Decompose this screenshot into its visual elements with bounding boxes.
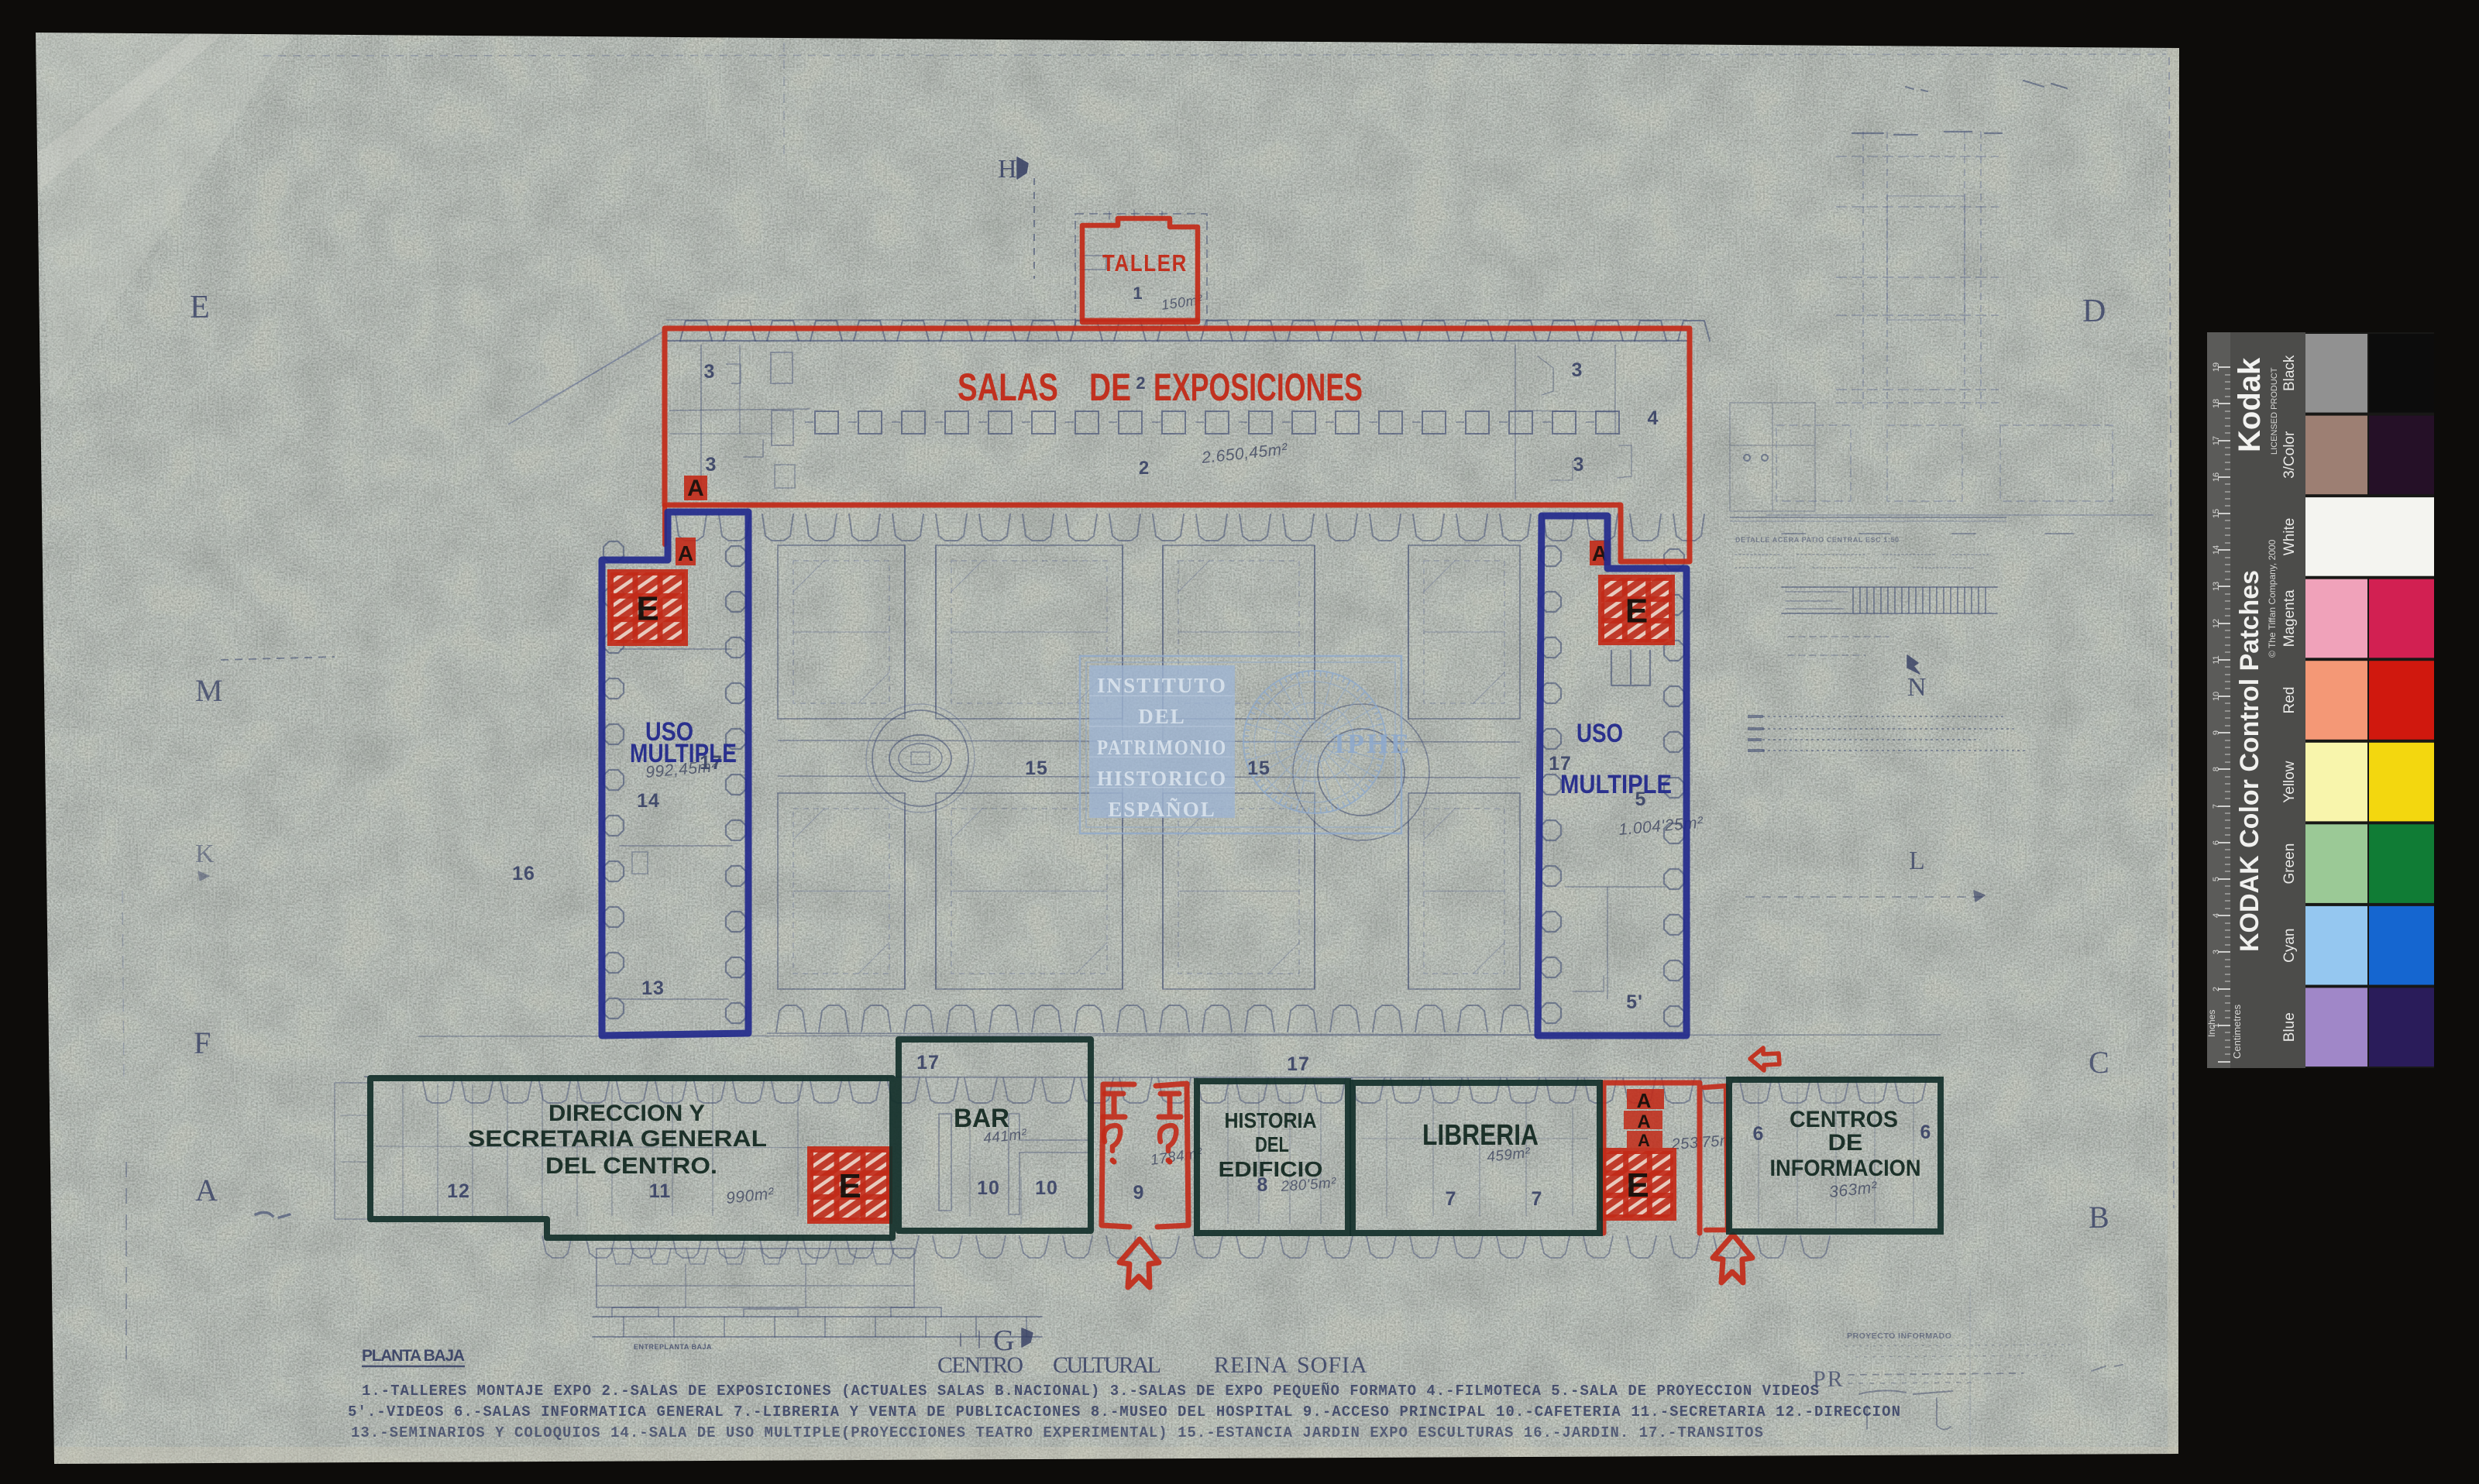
svg-text:DEL CENTRO.: DEL CENTRO.	[545, 1153, 717, 1179]
svg-text:DE: DE	[1089, 366, 1131, 409]
svg-text:10: 10	[1035, 1177, 1058, 1199]
svg-text:REINA: REINA	[1214, 1352, 1289, 1378]
svg-text:Yellow: Yellow	[2281, 761, 2298, 803]
svg-text:IPHE: IPHE	[1334, 728, 1411, 759]
svg-text:11: 11	[2212, 655, 2221, 664]
svg-text:DETALLE ACERA PATIO CENTRAL: DETALLE ACERA PATIO CENTRAL ESC 1:50	[1735, 536, 1900, 544]
svg-text:MULTIPLE: MULTIPLE	[630, 739, 737, 768]
svg-text:5': 5'	[1626, 991, 1643, 1013]
svg-text:EXPOSICIONES: EXPOSICIONES	[1154, 366, 1363, 409]
svg-text:H: H	[998, 155, 1017, 184]
svg-text:A: A	[1637, 1111, 1650, 1132]
svg-text:© The Tiffan Company, 2000: © The Tiffan Company, 2000	[2267, 539, 2278, 658]
svg-text:Blue: Blue	[2281, 1012, 2298, 1042]
svg-text:10: 10	[977, 1177, 1000, 1199]
svg-text:2: 2	[1136, 373, 1146, 393]
svg-text:PLANTA BAJA: PLANTA BAJA	[362, 1347, 465, 1365]
svg-text:9: 9	[1133, 1182, 1145, 1204]
svg-text:2: 2	[1139, 458, 1150, 479]
svg-text:11: 11	[649, 1180, 671, 1202]
svg-text:3/Color: 3/Color	[2281, 431, 2298, 479]
svg-text:Green: Green	[2281, 843, 2298, 885]
svg-text:17: 17	[2212, 436, 2221, 445]
svg-text:K: K	[195, 840, 215, 868]
svg-text:F: F	[194, 1025, 211, 1060]
svg-text:15: 15	[1247, 757, 1270, 779]
svg-text:13: 13	[2212, 582, 2221, 591]
svg-text:14: 14	[2212, 545, 2221, 555]
svg-text:L: L	[1909, 847, 1925, 875]
svg-text:Cyan: Cyan	[2281, 929, 2298, 963]
svg-text:PROYECTO INFORMADO: PROYECTO INFORMADO	[1847, 1331, 1951, 1341]
svg-text:TALLER: TALLER	[1102, 249, 1188, 277]
svg-text:A: A	[1637, 1089, 1652, 1112]
svg-text:3: 3	[704, 361, 716, 383]
svg-text:Inches: Inches	[2206, 1010, 2217, 1037]
svg-text:E: E	[838, 1167, 861, 1205]
svg-text:6: 6	[2212, 840, 2221, 845]
svg-text:BAR: BAR	[954, 1104, 1009, 1133]
svg-text:E: E	[1626, 1166, 1649, 1204]
svg-text:7: 7	[1532, 1188, 1543, 1210]
svg-text:16: 16	[512, 863, 535, 885]
svg-text:ESPAÑOL: ESPAÑOL	[1108, 798, 1216, 821]
svg-text:Centimetres: Centimetres	[2231, 1004, 2243, 1059]
svg-text:E: E	[1625, 592, 1648, 630]
svg-text:DEL: DEL	[1255, 1132, 1289, 1156]
svg-text:White: White	[2281, 518, 2298, 556]
svg-text:SOFIA: SOFIA	[1297, 1352, 1368, 1378]
svg-text:LIBRERIA: LIBRERIA	[1422, 1119, 1539, 1152]
svg-text:6: 6	[1753, 1123, 1765, 1145]
svg-text:ENTREPLANTA BAJA: ENTREPLANTA BAJA	[634, 1343, 712, 1351]
svg-text:PATRIMONIO: PATRIMONIO	[1097, 736, 1227, 759]
svg-text:15: 15	[1025, 757, 1048, 779]
svg-text:HISTORIA: HISTORIA	[1225, 1108, 1317, 1132]
svg-text:A: A	[687, 476, 704, 501]
svg-text:CENTRO: CENTRO	[937, 1352, 1024, 1378]
svg-text:5: 5	[2212, 877, 2221, 881]
svg-text:4: 4	[2212, 913, 2221, 918]
svg-text:1.-TALLERES MONTAJE EXPO 2.-SA: 1.-TALLERES MONTAJE EXPO 2.-SALAS DE EXP…	[362, 1383, 1819, 1400]
svg-text:12: 12	[2212, 619, 2221, 628]
svg-text:13.-SEMINARIOS Y COLOQUIOS 14.: 13.-SEMINARIOS Y COLOQUIOS 14.-SALA DE U…	[351, 1424, 1763, 1441]
svg-text:9: 9	[2212, 730, 2221, 735]
svg-text:7: 7	[1446, 1188, 1457, 1210]
svg-text:Kodak: Kodak	[2233, 357, 2267, 452]
svg-text:A: A	[1638, 1131, 1650, 1150]
svg-text:3: 3	[1573, 454, 1585, 476]
svg-text:16: 16	[2212, 472, 2221, 482]
svg-text:10: 10	[2212, 692, 2221, 701]
svg-text:A: A	[195, 1173, 218, 1207]
svg-text:17: 17	[916, 1052, 940, 1073]
svg-text:18: 18	[2212, 399, 2221, 408]
svg-text:D: D	[2082, 294, 2106, 329]
svg-text:Black: Black	[2281, 355, 2298, 391]
svg-text:19: 19	[2212, 362, 2221, 372]
svg-text:PR: PR	[1813, 1366, 1845, 1392]
svg-text:8: 8	[2212, 767, 2221, 771]
svg-text:HISTORICO: HISTORICO	[1097, 767, 1227, 790]
svg-text:C: C	[2089, 1045, 2109, 1080]
svg-text:7: 7	[2212, 804, 2221, 809]
svg-text:3: 3	[706, 454, 717, 476]
svg-text:KODAK Color Control Patches: KODAK Color Control Patches	[2235, 570, 2264, 952]
svg-text:14: 14	[637, 790, 660, 812]
svg-text:3: 3	[2212, 950, 2221, 954]
svg-text:2: 2	[2212, 987, 2221, 991]
svg-text:15: 15	[2212, 509, 2221, 518]
svg-text:Red: Red	[2281, 687, 2298, 714]
svg-text:Magenta: Magenta	[2281, 589, 2298, 647]
svg-text:EDIFICIO: EDIFICIO	[1219, 1157, 1323, 1181]
svg-text:CENTROS: CENTROS	[1790, 1107, 1898, 1132]
svg-text:INFORMACION: INFORMACION	[1770, 1156, 1921, 1181]
svg-text:DIRECCION Y: DIRECCION Y	[548, 1101, 705, 1126]
svg-text:SALAS: SALAS	[958, 366, 1058, 409]
svg-text:12: 12	[447, 1180, 470, 1202]
svg-text:A: A	[678, 541, 693, 565]
svg-text:M: M	[195, 673, 223, 708]
svg-text:17: 17	[1287, 1053, 1310, 1075]
svg-text:E: E	[636, 589, 658, 627]
svg-text:LICENSED PRODUCT: LICENSED PRODUCT	[2270, 367, 2279, 455]
svg-text:6: 6	[1920, 1122, 1932, 1143]
svg-text:13: 13	[641, 977, 665, 999]
svg-text:B: B	[2089, 1200, 2109, 1235]
svg-text:5'.-VIDEOS 6.-SALAS INFORMATIC: 5'.-VIDEOS 6.-SALAS INFORMATICA GENERAL …	[348, 1403, 1900, 1420]
svg-text:DEL: DEL	[1138, 705, 1186, 728]
svg-text:1: 1	[1133, 283, 1143, 303]
svg-text:SECRETARIA GENERAL: SECRETARIA GENERAL	[468, 1126, 767, 1152]
svg-text:DE: DE	[1828, 1130, 1863, 1156]
svg-text:MULTIPLE: MULTIPLE	[1560, 770, 1672, 799]
svg-text:INSTITUTO: INSTITUTO	[1097, 674, 1227, 697]
svg-text:E: E	[190, 290, 210, 325]
svg-text:N: N	[1907, 673, 1927, 702]
svg-text:CULTURAL: CULTURAL	[1053, 1352, 1162, 1378]
svg-text:3: 3	[1572, 359, 1583, 381]
svg-text:4: 4	[1648, 407, 1659, 429]
svg-text:USO: USO	[1576, 719, 1623, 748]
